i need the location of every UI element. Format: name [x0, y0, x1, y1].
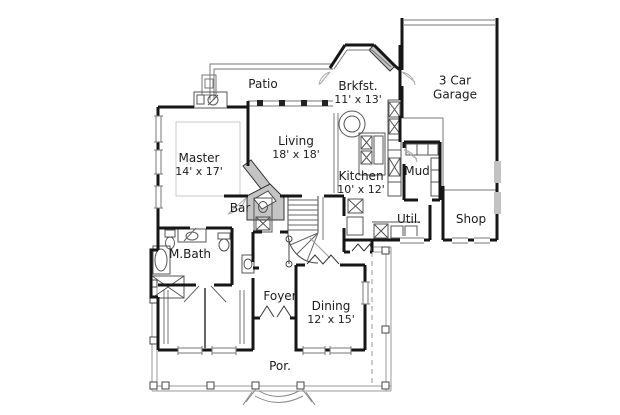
living-colonnade	[248, 100, 333, 106]
floorplan-canvas: Patio Brkfst.11' x 13' 3 CarGarage Livin…	[0, 0, 620, 415]
bath-fixtures	[152, 229, 254, 298]
room-label-garage: 3 CarGarage	[433, 74, 477, 103]
room-label-foyer: Foyer	[263, 289, 296, 303]
hall-closets	[347, 199, 363, 235]
room-label-util: Util.	[397, 212, 421, 226]
room-label-bar: Bar	[230, 201, 251, 215]
floorplan-drawing	[0, 0, 620, 415]
room-label-brkfst: Brkfst.11' x 13'	[334, 79, 382, 107]
room-label-kitchen: Kitchen10' x 12'	[337, 169, 385, 197]
room-label-dining: Dining12' x 15'	[307, 299, 355, 327]
room-label-mud: Mud	[404, 164, 430, 178]
room-label-living: Living18' x 18'	[272, 134, 320, 162]
room-label-porch: Por.	[269, 359, 291, 373]
room-label-shop: Shop	[456, 212, 486, 226]
room-label-master: Master14' x 17'	[175, 151, 223, 179]
garage-door-wall	[404, 20, 495, 25]
room-label-patio: Patio	[248, 77, 277, 91]
room-label-mbath: M.Bath	[169, 247, 211, 261]
